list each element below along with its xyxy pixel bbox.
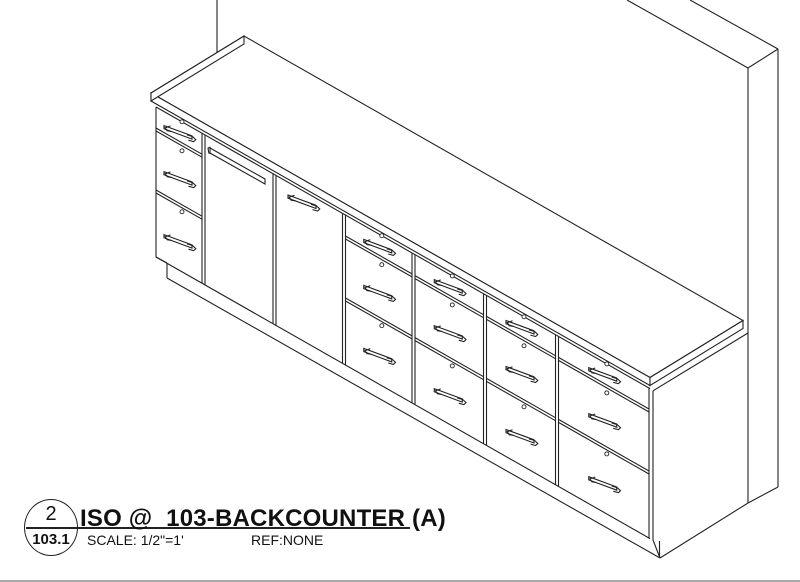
- drawer-handle-bar: [506, 321, 534, 335]
- drawer-screw: [180, 210, 184, 214]
- drawer-handle-bar: [164, 235, 192, 249]
- drawer-handle: [506, 430, 538, 446]
- drawer-screw: [605, 452, 609, 456]
- drawer-handle-bar: [164, 172, 192, 186]
- drawer-handle: [164, 172, 196, 188]
- wall-top-end-edge: [748, 49, 778, 68]
- drawer-screw: [522, 405, 526, 409]
- drawer-handle: [364, 239, 396, 255]
- drawer-screw: [380, 234, 384, 238]
- sheet-number: 103.1: [24, 531, 78, 548]
- drawer-gap-line: [487, 381, 556, 420]
- wall-bottom-end-edge: [748, 487, 778, 503]
- drawer-handle: [434, 280, 466, 296]
- wall-top-front-edge: [627, 0, 748, 68]
- isometric-drawing: [0, 0, 800, 582]
- drawer-gap-line: [346, 301, 413, 339]
- drawer-handle: [164, 126, 196, 142]
- door-handle-bar: [288, 195, 316, 209]
- drawer-handle: [164, 235, 196, 251]
- drawer-handle: [434, 389, 466, 405]
- drawer-handle-bar: [364, 285, 392, 299]
- drawer-screw: [180, 120, 184, 124]
- drawer-handle: [364, 285, 396, 301]
- drawer-handle: [589, 414, 621, 430]
- drawer-gap-line: [346, 298, 413, 336]
- drawer-handle-bar: [364, 239, 392, 253]
- drawer-screw: [450, 274, 454, 278]
- drawer-screw: [380, 263, 384, 267]
- toe-kick-left-return: [156, 257, 167, 263]
- drawer-handle: [589, 368, 621, 384]
- drawer-gap-line: [156, 193, 202, 219]
- drawer-gap-line: [559, 419, 650, 471]
- drawer-bank: [487, 315, 556, 446]
- drawer-handle-bar: [589, 368, 617, 382]
- countertop-top-face: [151, 36, 743, 378]
- drawer-handle-bar: [434, 280, 462, 294]
- drawer-gap-line: [415, 338, 484, 377]
- drawer-screw: [450, 303, 454, 307]
- drawer-screw: [522, 315, 526, 319]
- drawer-screw: [450, 364, 454, 368]
- drawer-gap-line: [415, 341, 484, 380]
- drawer-handle: [506, 321, 538, 337]
- drawer-gap-line: [156, 131, 202, 157]
- drawer-handle: [589, 477, 621, 493]
- drawer-handle: [364, 348, 396, 364]
- drawer-handle-bar: [589, 414, 617, 428]
- drawer-handle: [434, 326, 466, 342]
- cabinet-side-floor-edge: [660, 503, 748, 558]
- drawer-screw: [605, 362, 609, 366]
- detail-number: 2: [24, 503, 78, 525]
- drawer-handle-bar: [434, 326, 462, 340]
- drawing-title: ISO @ 103-BACKCOUNTER (A): [80, 505, 446, 533]
- drawer-gap-line: [487, 378, 556, 417]
- drawing-sheet: 2 103.1 ISO @ 103-BACKCOUNTER (A) SCALE:…: [0, 0, 800, 582]
- drawer-gap-line: [156, 190, 202, 216]
- drawer-bank: [415, 274, 484, 405]
- drawer-bank: [346, 234, 413, 365]
- drawer-screw: [605, 391, 609, 395]
- drawer-handle-bar: [164, 126, 192, 140]
- drawer-screw: [180, 149, 184, 153]
- scale-label: SCALE: 1/2"=1': [87, 532, 184, 548]
- drawer-handle: [506, 367, 538, 383]
- drawer-bank: [156, 120, 202, 251]
- drawer-handle-bar: [506, 367, 534, 381]
- drawer-screw: [380, 324, 384, 328]
- drawer-handle-bar: [506, 430, 534, 444]
- drawer-screw: [522, 344, 526, 348]
- drawer-handle-bar: [434, 389, 462, 403]
- drawer-handle-bar: [589, 477, 617, 491]
- drawer-handle-bar: [364, 348, 392, 362]
- wall-top-back-edge: [690, 0, 778, 49]
- reference-label: REF:NONE: [251, 532, 323, 548]
- drawer-gap-line: [559, 422, 650, 474]
